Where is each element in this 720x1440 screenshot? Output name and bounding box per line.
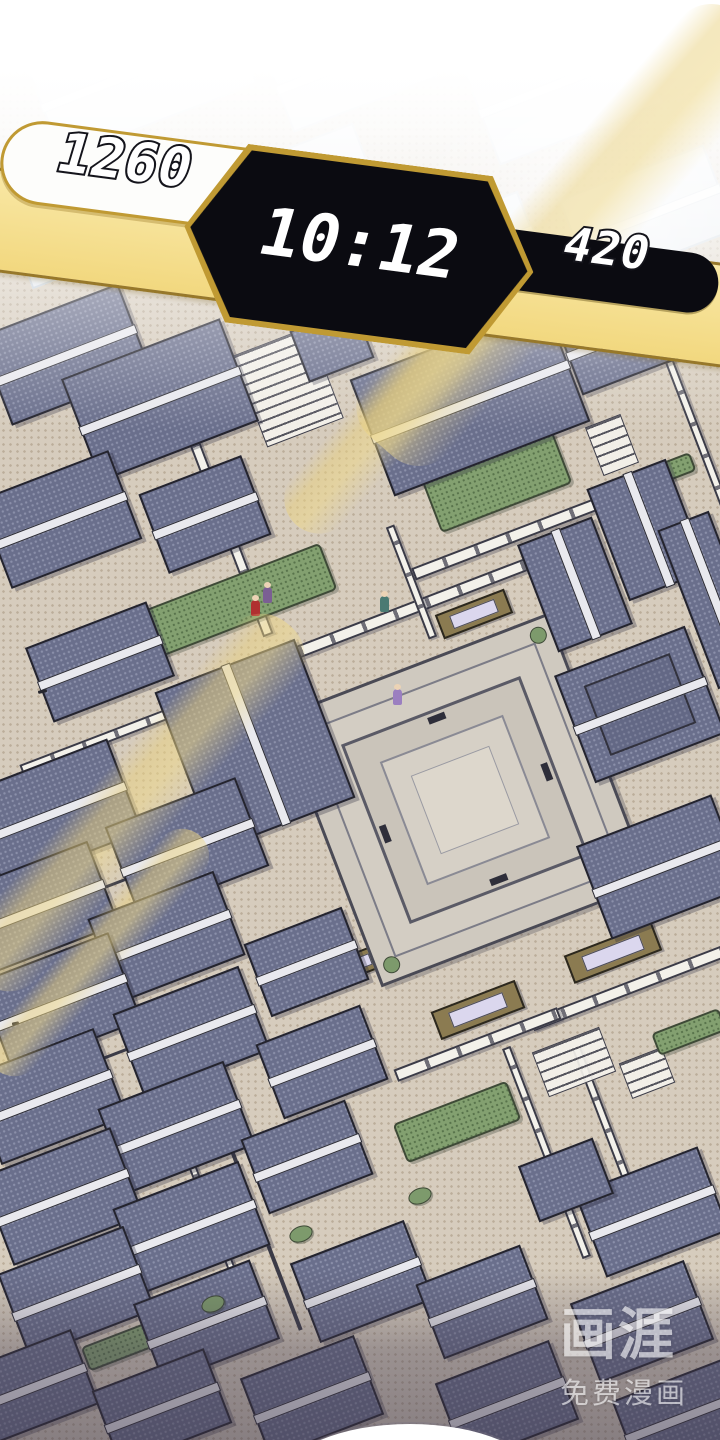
stairs (619, 1047, 676, 1099)
watermark-tagline: 免费漫画 (560, 1370, 688, 1412)
building-roof-faint (261, 0, 439, 133)
hedge (393, 1081, 522, 1164)
building-roof (290, 1220, 434, 1343)
comic-panel: 1260 10:12 420 画涯 免费漫画 (0, 0, 720, 1440)
building-roof (25, 601, 175, 722)
building-roof (244, 907, 370, 1017)
watermark-logo: 画涯 (560, 1304, 688, 1366)
person-purple (263, 587, 272, 603)
person-red (251, 600, 260, 616)
building-roof (240, 1335, 384, 1440)
building-roof (415, 1245, 548, 1360)
building-roof (255, 1005, 388, 1120)
plaza-corner-bush (381, 954, 403, 976)
stairs (585, 414, 639, 476)
bush (287, 1222, 315, 1246)
bush (406, 1184, 434, 1208)
person-teal (380, 596, 389, 612)
person-violet (393, 689, 402, 705)
building-roof (435, 1340, 579, 1440)
building-roof (138, 455, 271, 574)
stairs (532, 1027, 616, 1098)
watermark: 画涯 免费漫画 (560, 1304, 688, 1412)
building-roof (240, 1100, 373, 1215)
building-roof-faint (460, 0, 664, 166)
hedge (651, 1008, 720, 1056)
